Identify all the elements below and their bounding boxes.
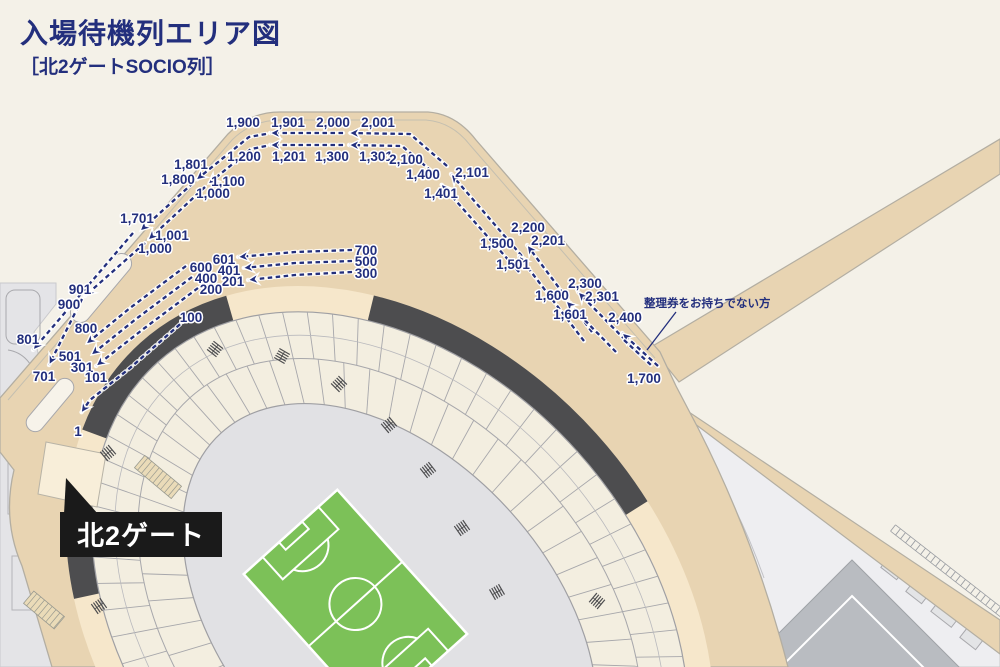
queue-number-label: 1,300 — [315, 149, 349, 164]
queue-number-label: 201 — [222, 274, 245, 289]
queue-number-label: 2,301 — [585, 289, 619, 304]
note-text: 整理券をお持ちでない方 — [643, 296, 771, 310]
queue-number-label: 1,900 — [226, 115, 260, 130]
queue-number-label: 2,001 — [361, 115, 395, 130]
queue-number-label: 1,500 — [480, 236, 514, 251]
queue-number-label: 1,700 — [627, 371, 661, 386]
queue-number-label: 701 — [33, 369, 56, 384]
queue-number-label: 1,701 — [120, 211, 154, 226]
queue-number-label: 800 — [75, 321, 98, 336]
queue-number-label: 1,201 — [272, 149, 306, 164]
queue-number-label: 2,100 — [389, 152, 423, 167]
queue-number-label: 300 — [355, 266, 378, 281]
page-title: 入場待機列エリア図 — [20, 12, 281, 52]
queue-number-label: 1,000 — [138, 241, 172, 256]
queue-number-label: 101 — [85, 370, 108, 385]
queue-area-map: 整理券をお持ちでない方 1,9001,9012,0002,0011,2001,2… — [0, 0, 1000, 667]
queue-number-label: 900 — [58, 297, 81, 312]
queue-number-label: 1 — [74, 424, 82, 439]
queue-number-label: 1,501 — [496, 257, 530, 272]
queue-number-label: 1,600 — [535, 288, 569, 303]
queue-number-label: 1,601 — [553, 307, 587, 322]
queue-number-label: 801 — [17, 332, 40, 347]
queue-number-label: 1,401 — [424, 186, 458, 201]
queue-number-label: 1,800 — [161, 172, 195, 187]
stadium-map: 整理券をお持ちでない方 1,9001,9012,0002,0011,2001,2… — [0, 0, 1000, 667]
queue-number-label: 2,400 — [608, 310, 642, 325]
queue-number-label: 901 — [69, 282, 92, 297]
queue-number-label: 2,201 — [531, 233, 565, 248]
queue-number-label: 1,801 — [174, 157, 208, 172]
queue-number-label: 1,901 — [271, 115, 305, 130]
queue-number-label: 1,400 — [406, 167, 440, 182]
queue-number-label: 2,101 — [455, 165, 489, 180]
queue-number-label: 1,200 — [227, 149, 261, 164]
queue-number-label: 1,000 — [196, 186, 230, 201]
page-subtitle: ［北2ゲートSOCIO列］ — [20, 52, 225, 79]
queue-number-label: 200 — [200, 282, 223, 297]
gate-label: 北2ゲート — [77, 521, 205, 551]
queue-number-label: 100 — [180, 310, 203, 325]
queue-number-label: 2,000 — [316, 115, 350, 130]
